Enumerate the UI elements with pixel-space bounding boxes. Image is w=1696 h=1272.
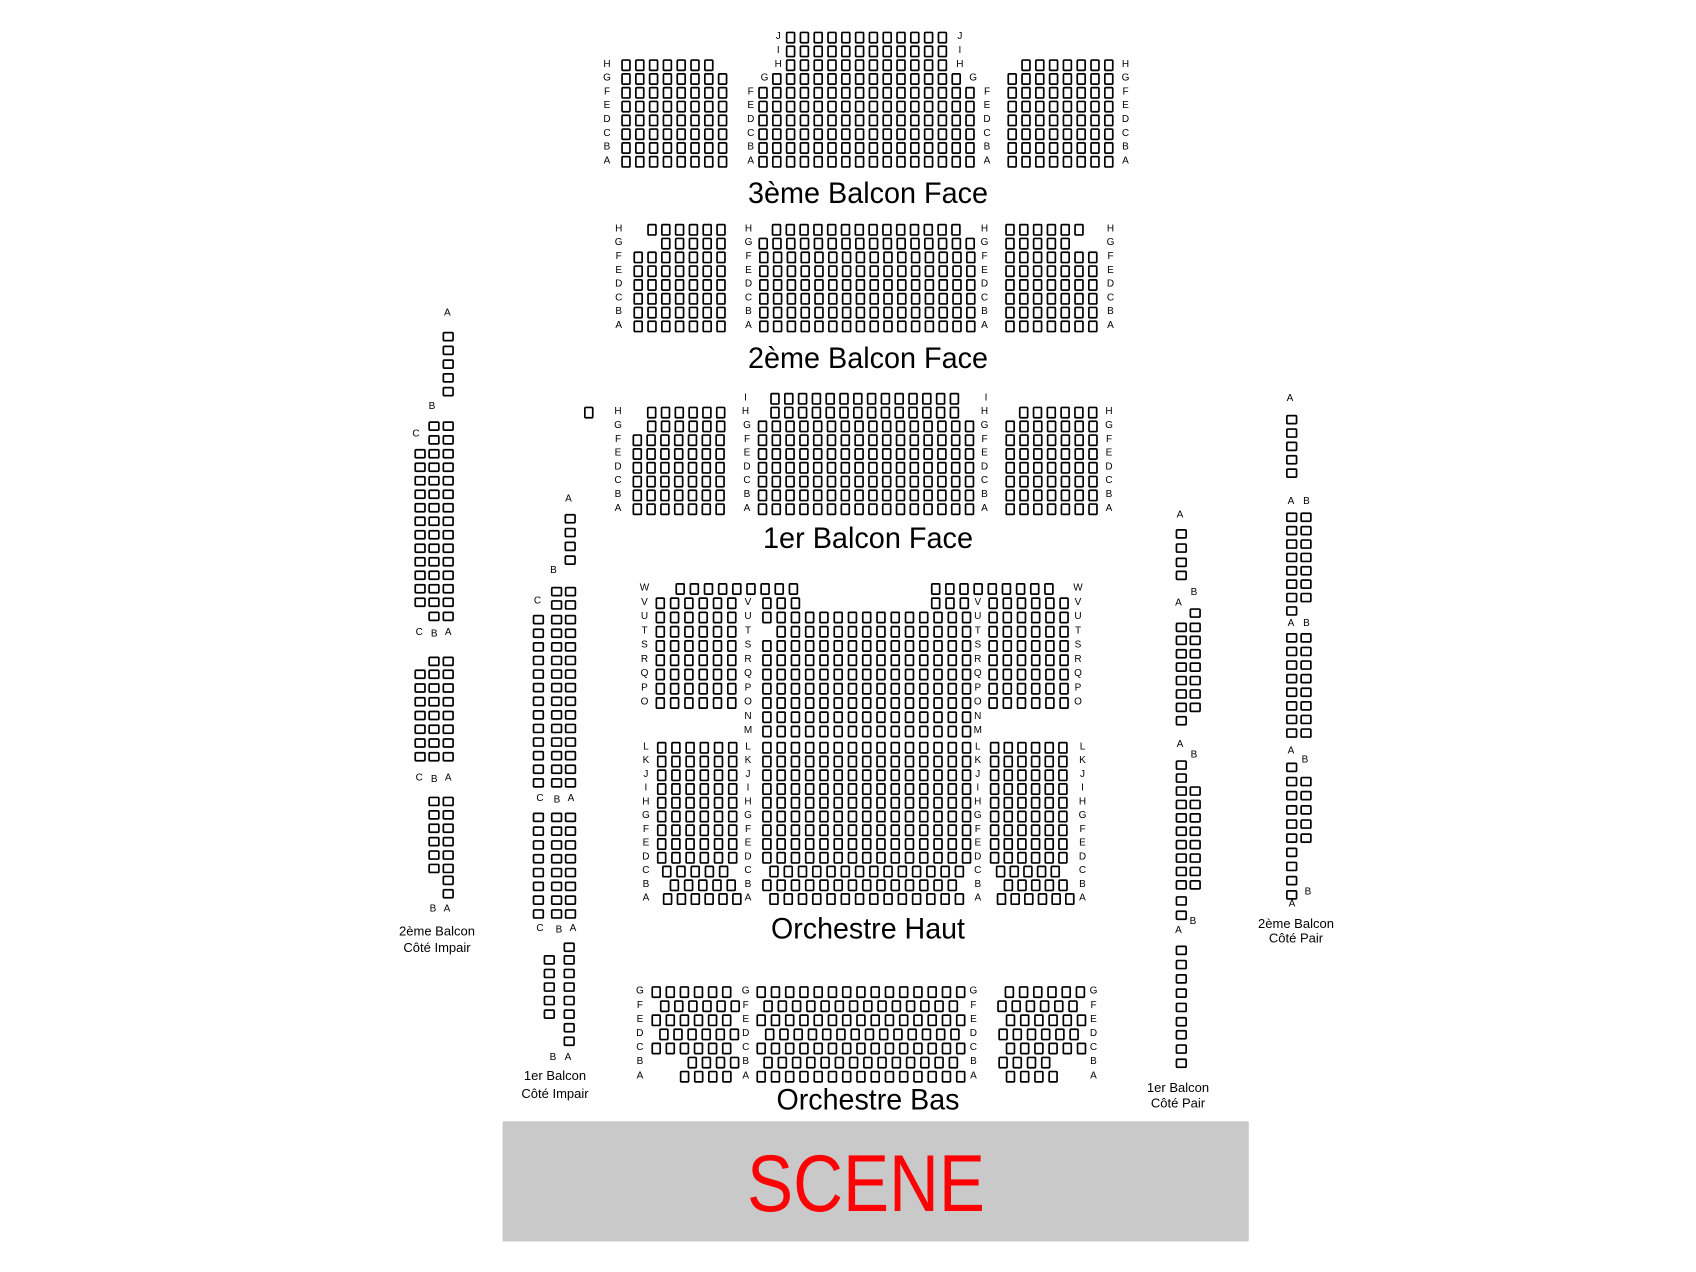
svg-text:A: A [970,1070,977,1081]
svg-text:3ème Balcon Face: 3ème Balcon Face [748,177,988,210]
svg-text:Côté Pair: Côté Pair [1269,931,1324,946]
svg-text:S: S [641,640,648,651]
svg-text:A: A [565,1052,572,1063]
svg-text:B: B [1107,306,1114,317]
svg-text:E: E [742,1014,749,1025]
svg-text:A: A [1107,320,1114,331]
svg-text:L: L [1080,741,1086,752]
svg-text:A: A [568,793,575,804]
svg-text:E: E [745,838,752,849]
svg-text:G: G [969,73,977,84]
svg-text:P: P [974,682,981,693]
svg-text:H: H [1122,59,1129,70]
svg-text:D: D [642,851,649,862]
svg-text:M: M [974,725,982,736]
svg-text:B: B [1090,1056,1097,1067]
svg-text:D: D [970,1028,977,1039]
svg-text:H: H [1107,223,1114,234]
svg-text:E: E [615,265,622,276]
svg-text:H: H [615,223,622,234]
svg-text:E: E [615,448,622,459]
svg-text:E: E [1079,838,1086,849]
svg-text:P: P [1075,682,1082,693]
svg-text:C: C [1105,475,1112,486]
svg-text:C: C [416,773,423,784]
svg-text:R: R [744,654,751,665]
svg-text:I: I [959,45,962,56]
svg-text:F: F [616,251,622,262]
svg-text:K: K [745,755,752,766]
svg-text:K: K [643,755,650,766]
svg-text:C: C [416,627,423,638]
svg-text:B: B [1106,489,1113,500]
svg-text:H: H [1079,796,1086,807]
svg-text:S: S [745,640,752,651]
svg-text:A: A [747,155,754,166]
svg-text:K: K [974,755,981,766]
svg-text:A: A [1288,746,1295,757]
svg-text:F: F [643,824,649,835]
svg-text:2ème Balcon Face: 2ème Balcon Face [748,342,988,375]
svg-text:H: H [614,406,621,417]
svg-text:F: F [984,86,990,97]
svg-text:C: C [981,475,988,486]
svg-text:D: D [615,279,622,290]
svg-text:G: G [970,986,978,997]
svg-text:B: B [742,1056,749,1067]
svg-text:G: G [615,237,623,248]
svg-text:Côté Pair: Côté Pair [1151,1096,1206,1111]
svg-text:S: S [1075,640,1082,651]
svg-text:G: G [614,420,622,431]
svg-text:B: B [981,306,988,317]
svg-text:G: G [603,73,611,84]
svg-text:A: A [615,503,622,514]
svg-text:G: G [1105,420,1113,431]
svg-text:H: H [1105,406,1112,417]
svg-text:G: G [636,986,644,997]
svg-text:C: C [615,292,622,303]
svg-text:F: F [970,1000,976,1011]
svg-text:D: D [1090,1028,1097,1039]
svg-text:A: A [1177,510,1184,521]
svg-text:Q: Q [974,668,982,679]
svg-text:H: H [981,406,988,417]
svg-text:A: A [1289,899,1296,910]
svg-text:A: A [444,903,451,914]
svg-text:B: B [974,879,981,890]
svg-text:D: D [614,461,621,472]
svg-text:E: E [1107,265,1114,276]
svg-text:P: P [745,682,752,693]
svg-text:L: L [975,741,981,752]
svg-text:C: C [642,865,649,876]
svg-text:N: N [744,711,751,722]
svg-text:B: B [550,1052,557,1063]
svg-text:F: F [981,434,987,445]
svg-text:B: B [747,142,754,153]
svg-text:D: D [636,1028,643,1039]
svg-text:U: U [1074,611,1081,622]
svg-text:E: E [1106,448,1113,459]
svg-text:D: D [747,114,754,125]
svg-text:A: A [745,320,752,331]
svg-text:I: I [747,783,750,794]
svg-text:A: A [445,773,452,784]
svg-text:F: F [604,86,610,97]
svg-text:L: L [745,741,751,752]
svg-text:B: B [1079,879,1086,890]
svg-text:G: G [1122,73,1130,84]
svg-text:W: W [640,583,650,594]
svg-text:G: G [981,237,989,248]
svg-text:D: D [1122,114,1129,125]
svg-text:C: C [603,128,610,139]
svg-text:C: C [536,793,543,804]
svg-text:B: B [431,774,438,785]
svg-text:H: H [642,796,649,807]
svg-text:A: A [445,627,452,638]
svg-text:E: E [744,448,751,459]
svg-text:B: B [554,795,561,806]
svg-text:D: D [745,279,752,290]
svg-text:U: U [744,611,751,622]
svg-text:S: S [974,640,981,651]
svg-text:D: D [744,851,751,862]
svg-text:D: D [1079,851,1086,862]
svg-text:A: A [1090,1070,1097,1081]
svg-text:C: C [983,128,990,139]
svg-text:N: N [974,711,981,722]
svg-text:B: B [1302,755,1309,766]
svg-text:D: D [743,461,750,472]
svg-text:B: B [431,629,438,640]
svg-text:F: F [743,1000,749,1011]
svg-text:V: V [745,597,752,608]
svg-text:H: H [745,223,752,234]
svg-text:O: O [1074,697,1082,708]
svg-text:A: A [1175,597,1182,608]
svg-text:B: B [604,142,611,153]
svg-text:A: A [981,320,988,331]
svg-text:B: B [615,306,622,317]
svg-text:J: J [957,31,962,42]
svg-text:2ème Balcon: 2ème Balcon [399,923,475,938]
svg-text:H: H [603,59,610,70]
svg-text:A: A [570,923,577,934]
svg-text:C: C [1090,1042,1097,1053]
svg-text:A: A [1175,925,1182,936]
svg-text:J: J [746,769,751,780]
svg-text:I: I [645,783,648,794]
svg-text:T: T [641,625,647,636]
svg-text:C: C [614,475,621,486]
svg-text:F: F [637,1000,643,1011]
svg-text:A: A [1122,155,1129,166]
svg-text:E: E [1090,1014,1097,1025]
svg-text:I: I [985,392,988,403]
svg-text:F: F [744,434,750,445]
svg-text:L: L [643,741,649,752]
svg-text:F: F [1090,1000,1096,1011]
svg-text:SCENE: SCENE [747,1139,985,1229]
svg-text:C: C [970,1042,977,1053]
svg-text:B: B [430,903,437,914]
svg-text:A: A [1287,393,1294,404]
svg-text:B: B [970,1056,977,1067]
svg-text:F: F [1106,434,1112,445]
svg-text:G: G [1107,237,1115,248]
svg-text:G: G [1079,810,1087,821]
svg-text:Q: Q [744,668,752,679]
svg-text:D: D [983,114,990,125]
svg-text:C: C [1079,865,1086,876]
svg-text:A: A [974,893,981,904]
svg-text:Côté Impair: Côté Impair [521,1086,589,1101]
svg-text:E: E [981,265,988,276]
svg-text:B: B [637,1056,644,1067]
svg-text:A: A [604,155,611,166]
svg-text:T: T [745,625,751,636]
svg-text:F: F [1107,251,1113,262]
svg-text:G: G [742,986,750,997]
svg-text:F: F [981,251,987,262]
svg-text:C: C [636,1042,643,1053]
svg-text:B: B [981,489,988,500]
svg-text:D: D [981,279,988,290]
svg-text:D: D [981,461,988,472]
svg-text:1er Balcon Face: 1er Balcon Face [763,522,973,555]
svg-text:V: V [641,597,648,608]
svg-text:O: O [974,697,982,708]
svg-text:A: A [745,893,752,904]
svg-text:C: C [744,865,751,876]
svg-text:U: U [641,611,648,622]
svg-text:A: A [637,1070,644,1081]
svg-text:H: H [956,59,963,70]
svg-text:G: G [761,73,769,84]
svg-text:I: I [777,45,780,56]
svg-text:F: F [1079,824,1085,835]
svg-text:B: B [1191,749,1198,760]
svg-text:A: A [615,320,622,331]
svg-text:F: F [745,251,751,262]
svg-text:H: H [974,796,981,807]
svg-text:B: B [1190,916,1197,927]
svg-text:G: G [981,420,989,431]
svg-text:1er Balcon: 1er Balcon [1147,1080,1209,1095]
svg-text:J: J [776,31,781,42]
svg-text:2ème Balcon: 2ème Balcon [1258,916,1334,931]
svg-text:G: G [745,237,753,248]
svg-text:E: E [637,1014,644,1025]
svg-text:I: I [744,392,747,403]
svg-text:E: E [974,838,981,849]
svg-text:A: A [742,1070,749,1081]
svg-text:T: T [1075,625,1081,636]
svg-text:A: A [744,503,751,514]
svg-text:G: G [744,810,752,821]
svg-text:B: B [1191,587,1198,598]
svg-text:J: J [975,769,980,780]
svg-text:U: U [974,611,981,622]
svg-text:A: A [643,893,650,904]
svg-text:R: R [974,654,981,665]
svg-text:E: E [643,838,650,849]
svg-text:B: B [643,879,650,890]
svg-text:H: H [742,406,749,417]
svg-text:H: H [981,223,988,234]
svg-text:D: D [1105,461,1112,472]
svg-text:C: C [981,292,988,303]
svg-text:G: G [743,420,751,431]
svg-text:A: A [1106,503,1113,514]
svg-text:B: B [615,489,622,500]
svg-text:E: E [970,1014,977,1025]
svg-text:A: A [565,494,572,505]
svg-text:D: D [1107,279,1114,290]
svg-text:A: A [1079,893,1086,904]
svg-text:T: T [975,625,981,636]
svg-text:C: C [534,596,541,607]
svg-text:B: B [744,489,751,500]
svg-text:B: B [550,565,557,576]
svg-text:1er Balcon: 1er Balcon [524,1068,586,1083]
svg-text:W: W [1073,583,1083,594]
svg-text:R: R [641,654,648,665]
svg-text:V: V [1075,597,1082,608]
svg-text:H: H [775,59,782,70]
svg-text:D: D [974,851,981,862]
svg-text:P: P [641,682,648,693]
svg-text:E: E [1122,100,1129,111]
svg-text:Orchestre Bas: Orchestre Bas [777,1084,960,1117]
svg-text:J: J [643,769,648,780]
svg-text:F: F [748,86,754,97]
svg-text:O: O [744,697,752,708]
svg-text:C: C [536,923,543,934]
svg-text:K: K [1079,755,1086,766]
svg-text:C: C [1107,292,1114,303]
svg-text:B: B [984,142,991,153]
svg-text:D: D [603,114,610,125]
svg-text:C: C [747,128,754,139]
svg-text:A: A [984,155,991,166]
svg-text:R: R [1074,654,1081,665]
svg-text:Orchestre Haut: Orchestre Haut [771,912,966,945]
svg-text:D: D [742,1028,749,1039]
svg-text:C: C [1122,128,1129,139]
svg-text:G: G [642,810,650,821]
svg-text:Q: Q [1074,668,1082,679]
svg-text:C: C [745,292,752,303]
svg-text:F: F [745,824,751,835]
svg-text:F: F [1122,86,1128,97]
svg-text:H: H [744,796,751,807]
svg-text:F: F [975,824,981,835]
svg-text:B: B [556,925,563,936]
svg-text:C: C [412,429,419,440]
svg-text:E: E [604,100,611,111]
svg-text:B: B [745,306,752,317]
svg-text:Côté Impair: Côté Impair [403,940,471,955]
svg-text:E: E [747,100,754,111]
svg-text:C: C [743,475,750,486]
svg-text:A: A [1288,618,1295,629]
svg-text:B: B [1305,887,1312,898]
svg-text:I: I [1081,783,1084,794]
svg-text:B: B [1303,496,1310,507]
svg-text:B: B [745,879,752,890]
svg-text:G: G [974,810,982,821]
svg-text:A: A [981,503,988,514]
svg-text:A: A [444,308,451,319]
svg-text:G: G [1090,986,1098,997]
svg-text:C: C [974,865,981,876]
svg-text:E: E [984,100,991,111]
svg-text:E: E [745,265,752,276]
svg-text:V: V [974,597,981,608]
svg-text:M: M [744,725,752,736]
svg-text:Q: Q [641,668,649,679]
svg-text:B: B [1122,142,1129,153]
svg-text:O: O [641,697,649,708]
svg-text:I: I [976,783,979,794]
svg-text:J: J [1080,769,1085,780]
svg-text:F: F [615,434,621,445]
svg-text:E: E [981,448,988,459]
svg-text:B: B [429,401,436,412]
svg-text:A: A [1177,739,1184,750]
svg-text:B: B [1303,618,1310,629]
svg-text:C: C [742,1042,749,1053]
svg-text:A: A [1288,496,1295,507]
